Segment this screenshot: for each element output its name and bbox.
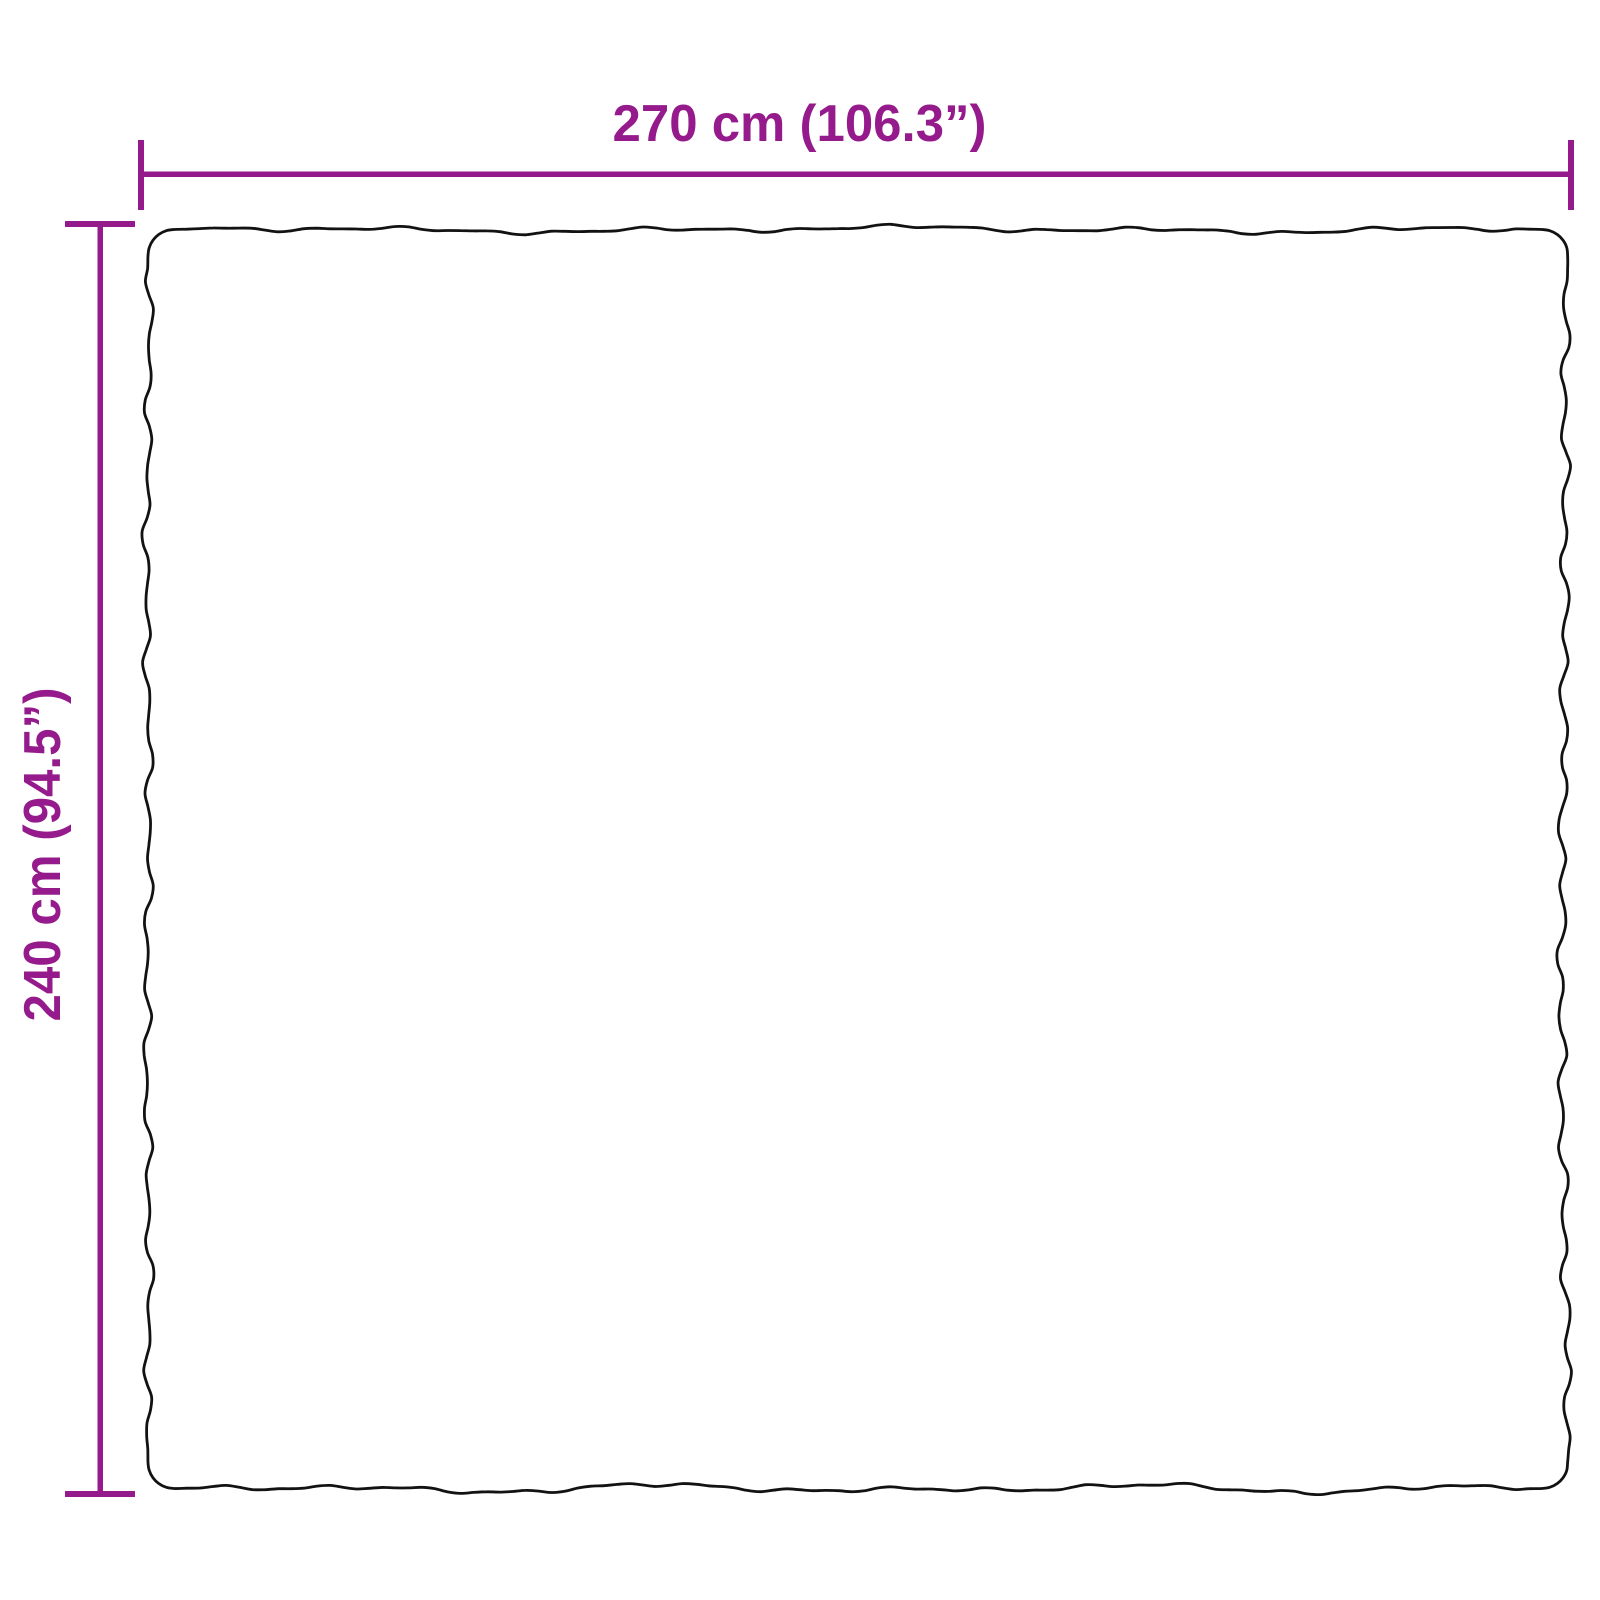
svg-text:270 cm (106.3”): 270 cm (106.3”)	[613, 95, 987, 153]
svg-text:240 cm (94.5”): 240 cm (94.5”)	[14, 688, 72, 1022]
